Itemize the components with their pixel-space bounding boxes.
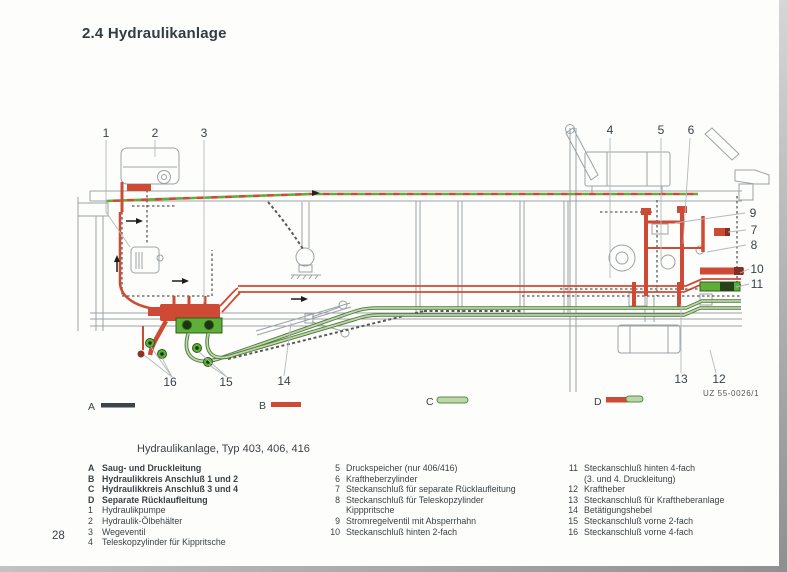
legend-row: 6Kraftheberzylinder [328,474,563,485]
chassis-outline [78,125,769,393]
callout-8: 8 [751,238,758,252]
legend-row-key: 15 [566,516,578,527]
swatch-d-bar-red [606,397,628,403]
legend-row-text: Teleskopzylinder für Kippritsche [102,537,226,548]
green-hydraulic-lines [146,282,742,367]
legend-row-text: Hydraulikkreis Anschluß 3 und 4 [102,484,238,495]
legend-row: 16Steckanschluß vorne 4-fach [566,527,781,538]
legend-row-key: 7 [328,484,340,495]
legend-row-key: 8 [328,495,340,506]
legend-row: 9Stromregelventil mit Absperrhahn [328,516,563,527]
legend-row-key: 1 [88,505,102,516]
legend-row-text: Separate Rücklaufleitung [102,495,208,506]
swatch-c-label: C [426,396,434,408]
legend-row-key: 4 [88,537,102,548]
legend-row-key: 3 [88,527,102,538]
callout-leader-lines [106,138,749,377]
legend-row: 10Steckanschluß hinten 2-fach [328,527,563,538]
callout-4: 4 [607,123,614,137]
scan-edge-bottom [0,566,787,572]
page-number: 28 [52,530,65,542]
legend-row-key: 11 [566,463,578,474]
legend-row-text: Stromregelventil mit Absperrhahn [346,516,476,527]
legend-row-key: 14 [566,505,578,516]
legend-row-key: 2 [88,516,102,527]
legend-row-key: 10 [328,527,340,538]
legend-row-key: 13 [566,495,578,506]
legend-row-key: 5 [328,463,340,474]
legend-row: 11Steckanschluß hinten 4-fach [566,463,781,474]
callout-3: 3 [201,126,208,140]
callout-15: 15 [219,375,233,389]
callout-13: 13 [674,372,688,386]
legend-row-key [566,474,578,485]
legend-row-key: 12 [566,484,578,495]
legend-row-key: 9 [328,516,340,527]
legend-row-key: A [88,463,102,474]
legend-row-text: Steckanschluß für Kraftheberanlage [584,495,724,506]
legend-row: 14Betätigungshebel [566,505,781,516]
legend-row-text: Kraftheber [584,484,625,495]
swatch-a-label: A [88,401,95,413]
legend-row: 8Steckanschluß für Teleskopzylinder [328,495,563,506]
figure-code: UZ 55-0026/1 [703,389,759,398]
legend-row-text: Wegeventil [102,527,145,538]
legend-row-text: Druckspeicher (nur 406/416) [346,463,457,474]
legend-column-2: 5Druckspeicher (nur 406/416)6Kraftheberz… [328,463,563,537]
callout-5: 5 [658,123,665,137]
legend-row-text: (3. und 4. Druckleitung) [584,474,675,485]
legend-row-text: Saug- und Druckleitung [102,463,201,474]
swatch-c-bar [437,397,468,403]
legend-row: CHydraulikkreis Anschluß 3 und 4 [88,484,328,495]
legend-row: 4Teleskopzylinder für Kippritsche [88,537,328,548]
flow-arrows [114,218,308,302]
legend-row-text: Steckanschluß vorne 4-fach [584,527,693,538]
callout-2: 2 [152,126,159,140]
swatch-a-bar [101,403,135,408]
legend-row-text: Hydraulikpumpe [102,505,166,516]
swatch-d-bar-green [626,396,643,402]
legend-row: 12Kraftheber [566,484,781,495]
legend-row-key: 6 [328,474,340,485]
legend-row-text: Steckanschluß für Teleskopzylinder [346,495,484,506]
legend-row: DSeparate Rücklaufleitung [88,495,328,506]
legend-row: ASaug- und Druckleitung [88,463,328,474]
swatch-b-label: B [259,400,266,412]
legend-column-1: ASaug- und DruckleitungBHydraulikkreis A… [88,463,328,548]
legend-row: (3. und 4. Druckleitung) [566,474,781,485]
legend-row-key [328,505,340,516]
legend-row: 5Druckspeicher (nur 406/416) [328,463,563,474]
legend-row: 15Steckanschluß vorne 2-fach [566,516,781,527]
legend-row-text: Kipppritsche [346,505,394,516]
scanned-manual-page: 2.4 Hydraulikanlage [0,0,787,572]
callout-6: 6 [688,123,695,137]
legend-row: 13Steckanschluß für Kraftheberanlage [566,495,781,506]
legend-row-key: D [88,495,102,506]
legend-row-key: B [88,474,102,485]
legend-column-3: 11Steckanschluß hinten 4-fach(3. und 4. … [566,463,781,537]
legend-row: 3Wegeventil [88,527,328,538]
swatch-d-label: D [594,396,602,408]
legend-row-text: Steckanschluß hinten 2-fach [346,527,457,538]
line-type-legend: A B C D [88,396,643,413]
legend-row-text: Steckanschluß hinten 4-fach [584,463,695,474]
legend-row-key: C [88,484,102,495]
figure-caption: Hydraulikanlage, Typ 403, 406, 416 [137,443,310,455]
legend-row-text: Steckanschluß für separate Rücklaufleitu… [346,484,516,495]
callout-7: 7 [751,223,758,237]
scan-edge-right [779,0,787,572]
callout-10: 10 [750,262,764,276]
legend-row-text: Hydraulikkreis Anschluß 1 und 2 [102,474,238,485]
dashed-red-green-line [106,190,698,201]
swatch-b-bar [271,402,301,407]
callout-1: 1 [103,126,110,140]
legend-row-text: Kraftheberzylinder [346,474,417,485]
callout-16: 16 [163,375,177,389]
legend-row-key: 16 [566,527,578,538]
legend-row: 1Hydraulikpumpe [88,505,328,516]
callout-12: 12 [712,372,726,386]
legend-row-text: Hydraulik-Ölbehälter [102,516,182,527]
legend-row: 7Steckanschluß für separate Rücklaufleit… [328,484,563,495]
legend-row: 2Hydraulik-Ölbehälter [88,516,328,527]
callout-11: 11 [751,277,764,291]
legend-row-text: Steckanschluß vorne 2-fach [584,516,693,527]
legend-row: BHydraulikkreis Anschluß 1 und 2 [88,474,328,485]
legend-row: Kipppritsche [328,505,563,516]
callout-9: 9 [750,206,757,220]
legend-row-text: Betätigungshebel [584,505,652,516]
callout-14: 14 [277,374,291,388]
